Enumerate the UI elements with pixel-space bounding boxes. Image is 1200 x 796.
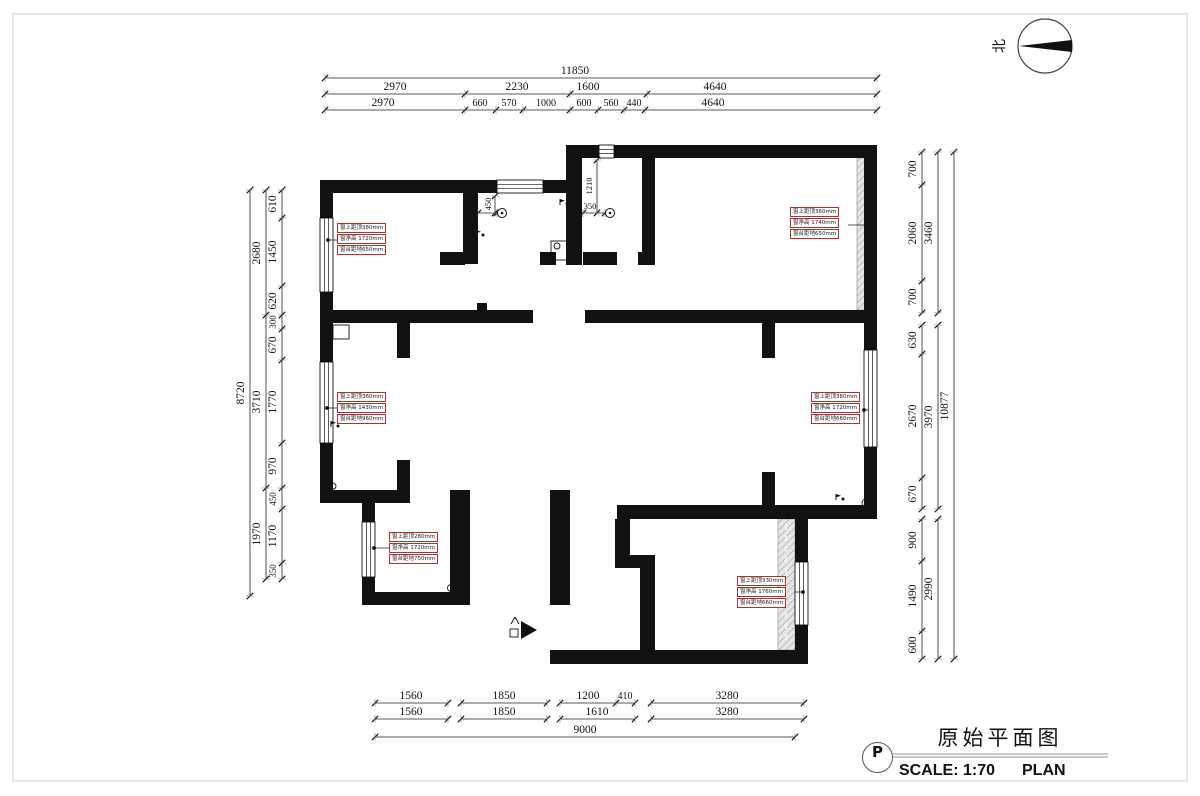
wall xyxy=(795,519,808,564)
dimension-label: 450 xyxy=(483,198,493,211)
dimension-label: 3460 xyxy=(923,221,935,244)
window-symbol xyxy=(497,180,543,193)
dimension-label: 560 xyxy=(604,98,619,109)
dimension-label: 350 xyxy=(268,564,278,578)
dimension-label: 1850 xyxy=(493,706,516,718)
window-spec-line: 窗上距顶380mm xyxy=(337,223,386,233)
window-spec-line: 窗台距地650mm xyxy=(337,245,386,255)
floor-plan-drawing: 1185029702230160046402970660570100060056… xyxy=(0,0,1200,796)
wall xyxy=(795,625,808,664)
window-spec-line: 窗净高 1740mm xyxy=(790,218,839,228)
wall xyxy=(397,323,410,358)
dimension-label: 9000 xyxy=(574,724,597,736)
dimension-label: 2990 xyxy=(923,577,935,600)
dimension-label: 610 xyxy=(267,195,279,213)
wall xyxy=(617,505,877,519)
wall xyxy=(550,650,808,664)
sheet-border xyxy=(13,14,1187,781)
dimension-label: 600 xyxy=(907,636,919,654)
dimension-label: 350 xyxy=(584,201,597,211)
dimension-label: 10877 xyxy=(939,391,951,420)
leader-dot xyxy=(862,408,866,412)
dimension-label: 1970 xyxy=(251,522,263,545)
window-symbol xyxy=(320,362,333,443)
window-spec-line: 窗上距顶280mm xyxy=(389,532,438,542)
window-symbol xyxy=(599,145,614,158)
dimension-label: 700 xyxy=(907,288,919,306)
wall xyxy=(566,145,582,265)
wall xyxy=(320,490,408,503)
entry-arrow-icon xyxy=(510,617,537,639)
wall xyxy=(450,490,470,605)
dimension-label: 3280 xyxy=(716,690,739,702)
wall xyxy=(762,323,775,358)
dimension-label: 3970 xyxy=(923,405,935,428)
window-spec-line: 窗台距地750mm xyxy=(389,554,438,564)
fixture-circle xyxy=(554,243,560,249)
window-spec-line: 窗台距地660mm xyxy=(737,598,786,608)
leader-dot xyxy=(326,238,330,242)
wall xyxy=(640,568,655,652)
north-needle-icon xyxy=(1019,40,1072,52)
wall xyxy=(440,252,465,265)
window-spec-line: 窗台距地650mm xyxy=(790,229,839,239)
dimension-label: 970 xyxy=(267,457,279,475)
dimension-label: 700 xyxy=(907,160,919,178)
wall xyxy=(585,310,877,323)
dimension-label: 1200 xyxy=(577,690,600,702)
dimension-label: 1560 xyxy=(400,706,423,718)
dimension-label: 2970 xyxy=(372,97,395,109)
plan-label: PLAN xyxy=(1022,762,1066,780)
leader-dot xyxy=(372,546,376,550)
window-symbol xyxy=(320,218,333,292)
wall xyxy=(397,460,410,503)
window-spec-line: 窗上距顶330mm xyxy=(737,576,786,586)
leader-dot xyxy=(864,223,868,227)
dimension-label: 670 xyxy=(907,485,919,503)
wall xyxy=(762,472,775,512)
window-symbol xyxy=(864,350,877,447)
dimension-label: 2060 xyxy=(907,221,919,244)
leader-dot xyxy=(801,590,805,594)
window-spec-line: 窗净高 1720mm xyxy=(811,403,860,413)
dimension-label: 3710 xyxy=(251,390,263,413)
dimension-label: 1170 xyxy=(267,524,279,547)
dimension-label: 3280 xyxy=(716,706,739,718)
dimension-label: 1600 xyxy=(577,81,600,93)
dimension-label: 1770 xyxy=(267,390,279,413)
dimension-label: 410 xyxy=(618,691,633,702)
window-spec-line: 窗台距地960mm xyxy=(337,414,386,424)
window-spec-label: 窗上距顶380mm 窗净高 1720mm 窗台距地650mm xyxy=(337,223,386,256)
scale-label: SCALE: 1:70 xyxy=(899,762,995,780)
window-spec-label: 窗上距顶280mm 窗净高 1720mm 窗台距地750mm xyxy=(389,532,438,565)
dimension-label: 2670 xyxy=(907,404,919,427)
wall xyxy=(540,252,556,265)
window-spec-label: 窗上距顶330mm 窗净高 1760mm 窗台距地660mm xyxy=(737,576,786,609)
dimension-label: 620 xyxy=(267,292,279,310)
drawing-title: 原始平面图 xyxy=(893,722,1107,752)
leader-dot xyxy=(325,406,329,410)
dimension-label: 4640 xyxy=(704,81,727,93)
dimension-label: 440 xyxy=(627,98,642,109)
window-spec-line: 窗净高 1720mm xyxy=(337,234,386,244)
dimension-label: 8720 xyxy=(235,381,247,404)
dimension-label: 360 xyxy=(464,201,477,211)
window-spec-line: 窗台距地660mm xyxy=(811,414,860,424)
window-spec-line: 窗上距顶380mm xyxy=(811,392,860,402)
dimension-label: 1450 xyxy=(267,240,279,263)
dimension-label: 660 xyxy=(473,98,488,109)
wall xyxy=(642,158,655,265)
dimension-label: 1560 xyxy=(400,690,423,702)
dimension-label: 1000 xyxy=(536,98,556,109)
dimension-label: 4640 xyxy=(702,97,725,109)
dimension-label: 1490 xyxy=(907,584,919,607)
window-spec-label: 窗上距顶380mm 窗净高 1720mm 窗台距地660mm xyxy=(811,392,860,425)
window-spec-line: 窗净高 1430mm xyxy=(337,403,386,413)
dimension-label: 1610 xyxy=(586,706,609,718)
window-spec-label: 窗上距顶360mm 窗净高 1430mm 窗台距地960mm xyxy=(337,392,386,425)
wall xyxy=(638,252,655,265)
window-symbol xyxy=(795,562,808,625)
pipe-flag-icon xyxy=(836,494,845,501)
title-tag-circle: P xyxy=(862,742,893,773)
window-spec-line: 窗净高 1760mm xyxy=(737,587,786,597)
wall xyxy=(477,303,487,310)
dimension-label: 1210 xyxy=(584,178,594,195)
dimension-label: 600 xyxy=(577,98,592,109)
dimension-label: 2680 xyxy=(251,241,263,264)
wall xyxy=(864,145,877,519)
floor-drain-dot xyxy=(501,212,504,215)
wall xyxy=(463,180,478,264)
north-label: 北 xyxy=(992,39,1008,53)
dimension-label: 450 xyxy=(268,492,278,506)
dimension-label: 670 xyxy=(267,336,279,354)
wall xyxy=(550,490,570,605)
window-spec-label: 窗上距顶360mm 窗净高 1740mm 窗台距地650mm xyxy=(790,207,839,240)
window-spec-line: 窗净高 1720mm xyxy=(389,543,438,553)
wall xyxy=(615,555,655,568)
dimension-label: 570 xyxy=(502,98,517,109)
wall xyxy=(583,252,617,265)
dimension-label: 2230 xyxy=(506,81,529,93)
north-indicator: 北 xyxy=(992,19,1072,73)
window-spec-line: 窗上距顶360mm xyxy=(790,207,839,217)
dimension-label: 630 xyxy=(907,331,919,349)
dimension-label: 2970 xyxy=(384,81,407,93)
floor-drain-dot xyxy=(609,212,612,215)
dimension-label: 300 xyxy=(268,315,278,329)
floor-plan-sheet: 1185029702230160046402970660570100060056… xyxy=(0,0,1200,796)
fixture-outline xyxy=(333,325,349,339)
dimension-label: 11850 xyxy=(561,65,590,77)
dimension-label: 1850 xyxy=(493,690,516,702)
wall xyxy=(320,310,533,323)
window-spec-line: 窗上距顶360mm xyxy=(337,392,386,402)
dimension-label: 900 xyxy=(907,531,919,549)
